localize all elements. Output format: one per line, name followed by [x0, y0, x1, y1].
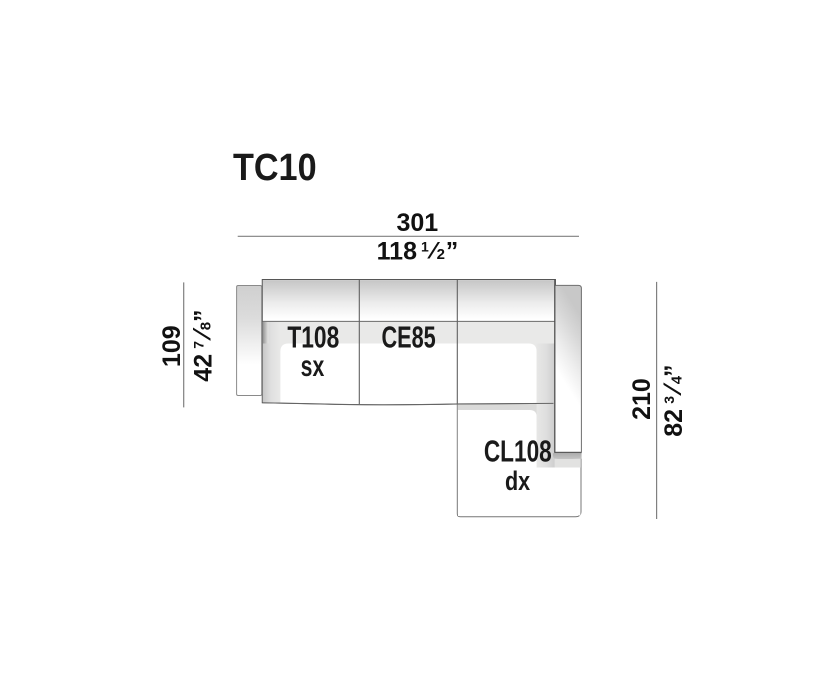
- svg-text:3: 3: [661, 396, 677, 404]
- svg-text:1: 1: [421, 238, 429, 254]
- svg-text:301: 301: [396, 209, 438, 237]
- svg-text:2: 2: [437, 246, 445, 263]
- svg-text:sx: sx: [301, 351, 325, 383]
- svg-text:T108: T108: [287, 319, 339, 354]
- svg-text:CE85: CE85: [381, 320, 435, 355]
- svg-text:82: 82: [660, 409, 688, 437]
- svg-text:118: 118: [377, 237, 417, 265]
- svg-text:dx: dx: [505, 467, 531, 497]
- svg-text:8: 8: [198, 322, 215, 330]
- svg-text:42: 42: [189, 354, 217, 382]
- svg-text:CL108: CL108: [484, 433, 552, 468]
- svg-text:”: ”: [446, 237, 459, 265]
- svg-text:TC10: TC10: [233, 145, 317, 188]
- svg-text:”: ”: [660, 365, 688, 378]
- svg-text:”: ”: [189, 310, 217, 323]
- svg-text:109: 109: [158, 325, 186, 367]
- svg-text:7: 7: [190, 341, 206, 349]
- svg-text:210: 210: [628, 378, 656, 420]
